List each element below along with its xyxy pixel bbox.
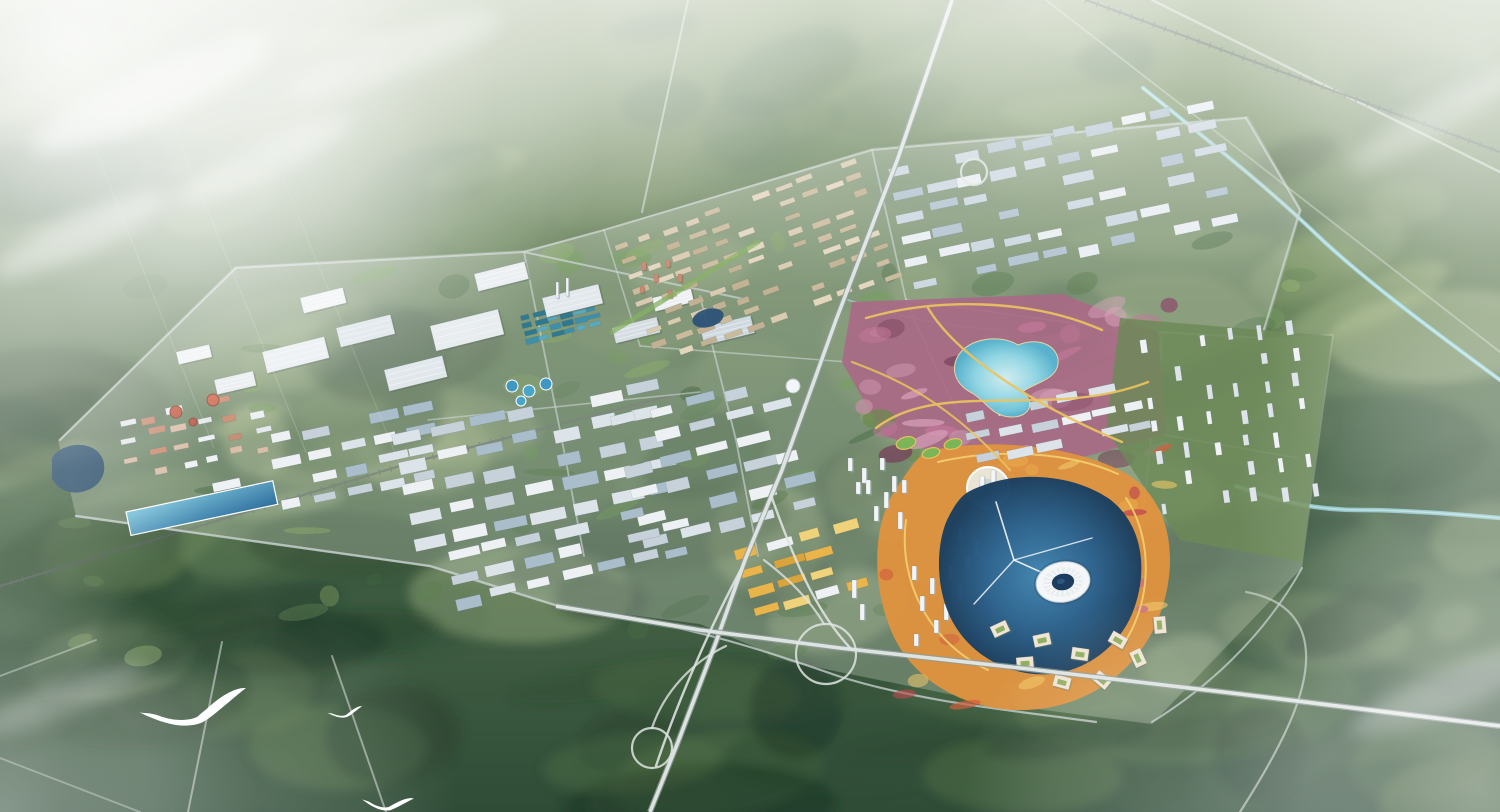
aerial-render [0,0,1500,812]
gas-sphere-tank [786,379,800,393]
aerial-render-svg [0,0,1500,812]
